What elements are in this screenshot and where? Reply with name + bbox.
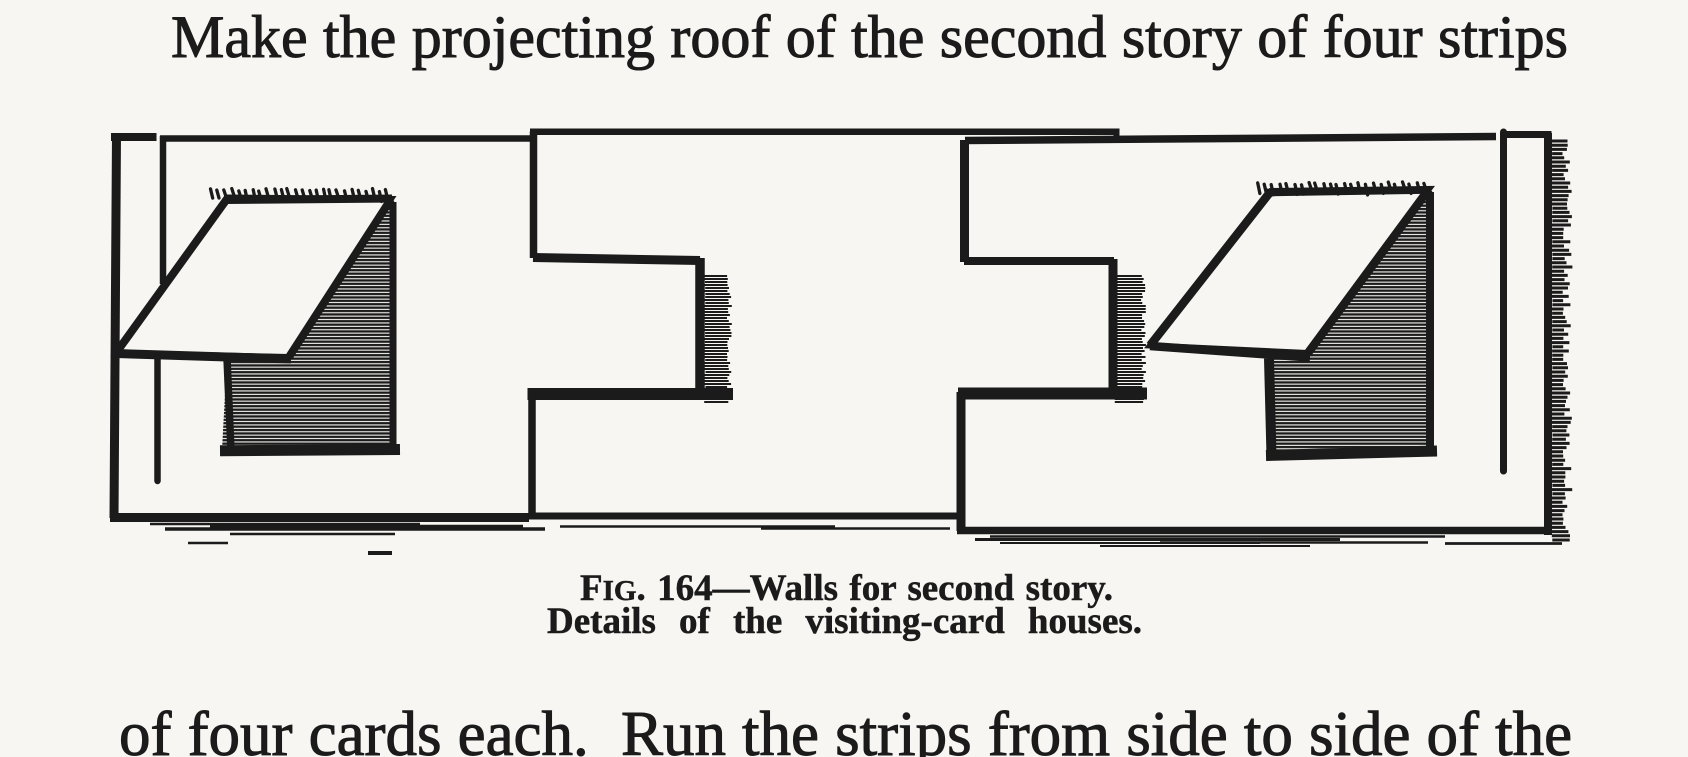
svg-text:Make the projecting roof of th: Make the projecting roof of the second s…: [171, 4, 1568, 70]
svg-text:of four cards each. Run the s: of four cards each. Run the strips from …: [119, 699, 1572, 757]
svg-text:Details of the visiting-card h: Details of the visiting-card houses.: [547, 601, 1142, 642]
